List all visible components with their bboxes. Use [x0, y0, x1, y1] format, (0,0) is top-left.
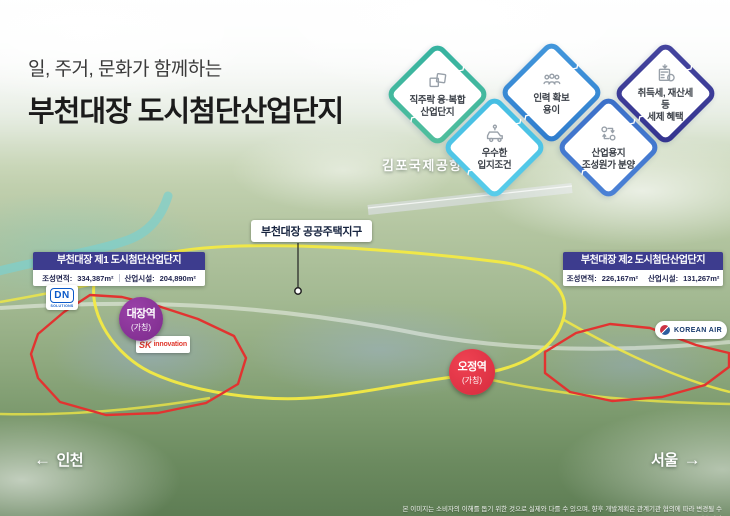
station-badge-ojeong: 오정역 (가칭) — [449, 349, 495, 395]
runway-strip — [368, 188, 572, 210]
station-name: 오정역 — [458, 358, 487, 374]
airport-label: 김포국제공항 — [382, 155, 463, 174]
complex2-callout: 부천대장 제2 도시첨단산업단지 조성면적:226,167m² 산업시설:131… — [563, 252, 723, 286]
facility-label: 산업시설: — [125, 273, 155, 284]
direction-west-incheon: ← 인천 — [34, 449, 83, 470]
area-value: 226,167m² — [602, 274, 638, 283]
benefit-label: 우수한 — [482, 148, 507, 159]
right-arrow-icon: → — [684, 450, 701, 470]
runway-centerline — [368, 186, 572, 208]
facility-label: 산업시설: — [648, 273, 678, 284]
benefit-label: 인력 확보 — [533, 93, 569, 104]
benefit-label: 취득세, 재산세 등 — [638, 88, 693, 111]
housing-district-badge: 부천대장 공공주택지구 — [251, 220, 372, 242]
station-badge-daejang: 대장역 (가칭) — [119, 297, 163, 341]
benefit-label: 입지조건 — [478, 160, 512, 171]
direction-east-seoul: 서울 → — [651, 449, 700, 470]
direction-label: 서울 — [651, 449, 678, 470]
facility-value: 131,267m² — [683, 274, 719, 283]
benefit-label: 용이 — [543, 105, 560, 116]
direction-label: 인천 — [57, 449, 84, 470]
area-value: 334,387m² — [77, 274, 113, 283]
housing-badge-anchor — [295, 288, 301, 294]
infographic-canvas: 일, 주거, 문화가 함께하는 부천대장 도시첨단산업단지 직주락 융·복합 산… — [0, 0, 730, 516]
headline-title: 부천대장 도시첨단산업단지 — [28, 88, 343, 130]
main-road — [0, 304, 730, 349]
tax-benefit-icon — [655, 63, 677, 85]
benefit-label: 세제 혜택 — [647, 112, 683, 123]
dn-logo-text: DN — [50, 288, 73, 303]
benefit-label: 직주락 융·복합 — [410, 95, 466, 106]
area-label: 조성면적: — [42, 273, 72, 284]
benefit-label: 조성원가 분양 — [582, 160, 635, 171]
headline-subtitle: 일, 주거, 문화가 함께하는 — [28, 54, 343, 81]
benefit-label: 산업단지 — [421, 107, 455, 118]
station-sub: (가칭) — [462, 375, 482, 386]
korean-air-symbol-icon — [660, 325, 670, 335]
complex1-specs: 조성면적:334,387m² 산업시설:204,890m² — [33, 270, 205, 286]
complex1-callout: 부천대장 제1 도시첨단산업단지 조성면적:334,387m² 산업시설:204… — [33, 252, 205, 286]
station-sub: (가칭) — [131, 322, 151, 333]
facility-value: 204,890m² — [160, 274, 196, 283]
sk-logo-text: SK — [139, 340, 152, 350]
divider — [119, 274, 120, 282]
area-label: 조성면적: — [567, 273, 597, 284]
car-location-icon — [484, 123, 506, 145]
disclaimer-text: 본 이미지는 소비자의 이해를 돕기 위한 것으로 실제와 다를 수 있으며, … — [402, 503, 722, 516]
dn-solutions-logo: DN SOLUTIONS — [46, 285, 78, 310]
station-name: 대장역 — [127, 305, 156, 321]
headline-block: 일, 주거, 문화가 함께하는 부천대장 도시첨단산업단지 — [28, 54, 343, 130]
benefit-label: 산업용지 — [592, 148, 626, 159]
complex2-title: 부천대장 제2 도시첨단산업단지 — [563, 252, 723, 270]
complex1-title: 부천대장 제1 도시첨단산업단지 — [33, 252, 205, 270]
yellow-road-southwest — [0, 398, 210, 414]
people-icon — [541, 68, 563, 90]
dn-logo-subtext: SOLUTIONS — [50, 304, 73, 308]
left-arrow-icon: ← — [34, 450, 51, 470]
korean-air-logo: KOREAN AIR — [655, 321, 727, 339]
cost-transfer-icon — [598, 123, 620, 145]
complex2-specs: 조성면적:226,167m² 산업시설:131,267m² — [563, 270, 723, 286]
korean-air-logo-text: KOREAN AIR — [674, 327, 722, 334]
puzzle-icon — [427, 70, 449, 92]
sk-logo-subtext: innovation — [154, 341, 187, 348]
